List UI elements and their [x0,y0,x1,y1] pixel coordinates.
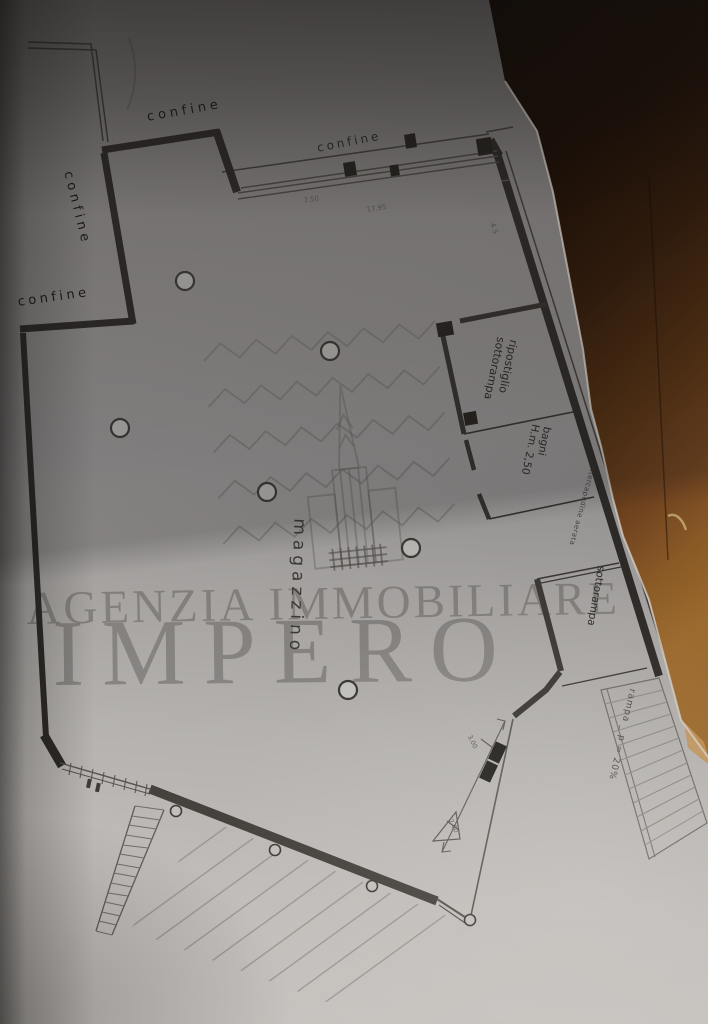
floor-plan-drawing [0,0,708,1024]
photo-of-floor-plan: AGENZIA IMMOBILIARE IMPERO [0,0,708,1024]
railing-marks [86,779,101,793]
area-label-magazzino: magazzino [284,518,308,656]
wood-table-background [489,0,708,764]
railing [60,763,150,796]
